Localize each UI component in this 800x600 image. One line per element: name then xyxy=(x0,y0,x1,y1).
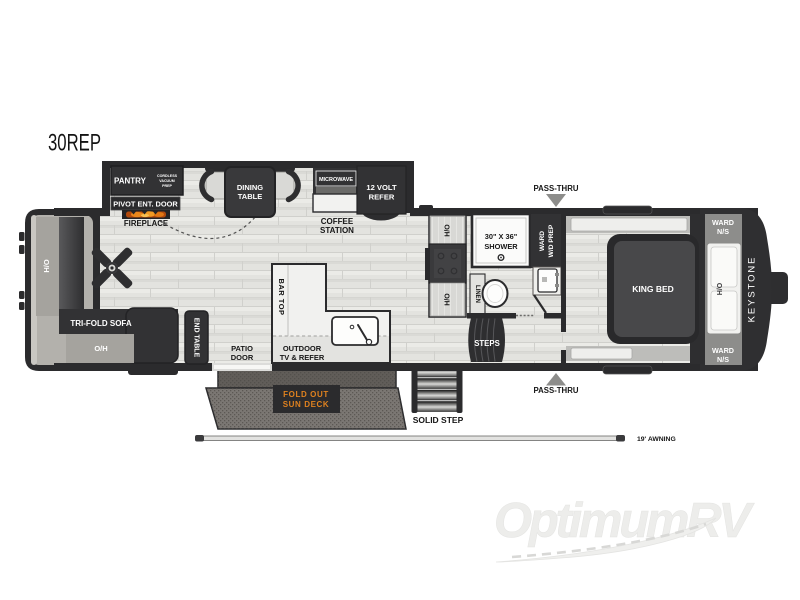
svg-text:DINING: DINING xyxy=(237,183,263,192)
svg-text:SOLID STEP: SOLID STEP xyxy=(413,415,464,425)
svg-text:SUN DECK: SUN DECK xyxy=(283,400,330,409)
svg-text:PASS-THRU: PASS-THRU xyxy=(534,184,579,193)
svg-text:H/O: H/O xyxy=(444,293,451,306)
svg-text:REFER: REFER xyxy=(369,193,395,202)
svg-text:WARD: WARD xyxy=(539,231,546,251)
svg-text:VACUUM: VACUUM xyxy=(159,179,175,183)
svg-text:SHOWER: SHOWER xyxy=(484,242,518,251)
svg-text:W/D PREP: W/D PREP xyxy=(548,224,555,257)
svg-text:PASS-THRU: PASS-THRU xyxy=(534,386,579,395)
svg-text:LINEN: LINEN xyxy=(474,285,480,303)
svg-text:WARD: WARD xyxy=(712,218,734,227)
svg-text:FOLD OUT: FOLD OUT xyxy=(283,390,329,399)
svg-text:N/S: N/S xyxy=(717,227,729,236)
svg-text:PATIO: PATIO xyxy=(231,344,253,353)
svg-text:FIREPLACE: FIREPLACE xyxy=(124,219,168,228)
svg-text:CORDLESS: CORDLESS xyxy=(157,174,178,178)
svg-text:OptimumRV: OptimumRV xyxy=(494,494,755,548)
svg-text:12 VOLT: 12 VOLT xyxy=(366,183,397,192)
svg-text:STEPS: STEPS xyxy=(474,339,500,348)
svg-text:MICROWAVE: MICROWAVE xyxy=(319,177,353,183)
svg-text:PREP: PREP xyxy=(162,184,172,188)
svg-text:BAR TOP: BAR TOP xyxy=(277,278,286,315)
svg-text:TV & REFER: TV & REFER xyxy=(280,353,325,362)
svg-text:H/O: H/O xyxy=(717,282,724,295)
svg-text:TABLE: TABLE xyxy=(238,192,262,201)
svg-text:N/S: N/S xyxy=(717,355,729,364)
svg-text:PIVOT ENT. DOOR: PIVOT ENT. DOOR xyxy=(113,200,178,209)
svg-text:30REP: 30REP xyxy=(48,130,101,157)
svg-text:KEYSTONE: KEYSTONE xyxy=(747,256,758,323)
svg-text:TRI-FOLD SOFA: TRI-FOLD SOFA xyxy=(70,319,132,328)
svg-text:DOOR: DOOR xyxy=(231,353,254,362)
svg-text:O/H: O/H xyxy=(94,344,107,353)
svg-text:H/O: H/O xyxy=(444,224,451,237)
svg-text:30" X 36": 30" X 36" xyxy=(485,232,518,241)
svg-text:H/O: H/O xyxy=(42,259,51,273)
svg-text:KING BED: KING BED xyxy=(632,284,674,294)
svg-text:19' AWNING: 19' AWNING xyxy=(637,436,676,443)
svg-text:END TABLE: END TABLE xyxy=(193,318,200,358)
svg-text:PANTRY: PANTRY xyxy=(114,177,147,186)
svg-text:WARD: WARD xyxy=(712,346,734,355)
svg-text:STATION: STATION xyxy=(320,226,354,235)
svg-text:COFFEE: COFFEE xyxy=(321,217,354,226)
svg-text:OUTDOOR: OUTDOOR xyxy=(283,344,322,353)
